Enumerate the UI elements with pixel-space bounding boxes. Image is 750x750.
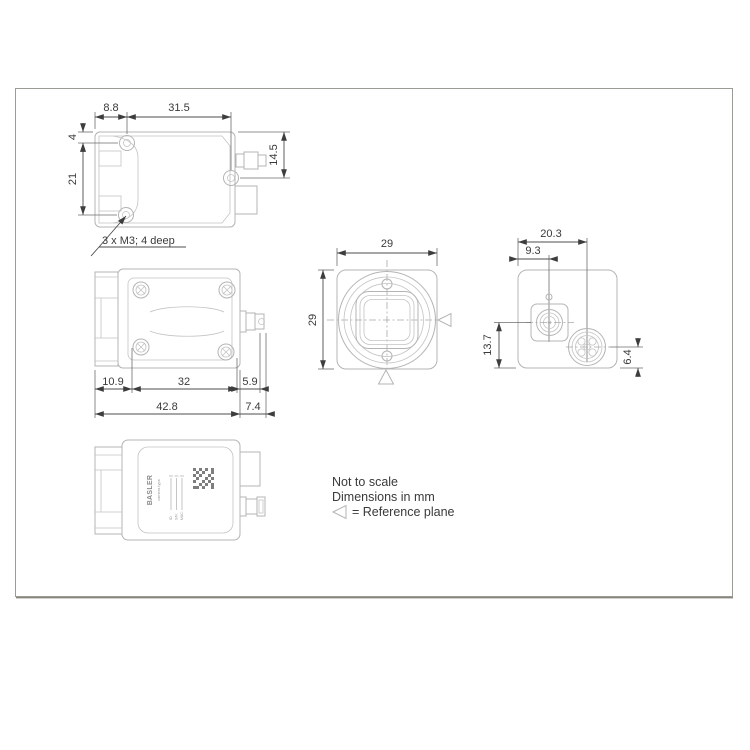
dim-label: 20.3 <box>540 228 561 240</box>
dim-label: 42.8 <box>156 401 177 413</box>
not-to-scale-note: Not to scale <box>332 475 398 489</box>
dim-label: 9.3 <box>525 245 540 257</box>
id-label: ID: <box>169 516 173 521</box>
dim-label: 31.5 <box>168 102 189 114</box>
dim-label: 5.9 <box>242 376 257 388</box>
dim-label: 32 <box>178 376 190 388</box>
dim-label: 21 <box>67 173 79 185</box>
drawing-page: 8.8 31.5 4 21 14.5 <box>0 0 750 750</box>
units-note: Dimensions in mm <box>332 490 435 504</box>
brand-label: BASLER <box>147 475 154 506</box>
dim-label: 6.4 <box>622 349 634 364</box>
dim-label: 8.8 <box>103 102 118 114</box>
reference-plane-note: = Reference plane <box>352 505 455 519</box>
camera-type-label: camera type <box>156 478 161 501</box>
dim-label: 29 <box>381 238 393 250</box>
thread-note-label: 3 x M3; 4 deep <box>102 235 175 247</box>
sn-label: S/N: <box>175 513 179 520</box>
dim-label: 13.7 <box>482 334 494 355</box>
dim-label: 4 <box>67 134 79 140</box>
dim-label: 29 <box>307 314 319 326</box>
mac-label: MAC: <box>180 511 184 520</box>
technical-drawing: 8.8 31.5 4 21 14.5 <box>0 0 750 750</box>
dim-label: 10.9 <box>102 376 123 388</box>
dim-label: 7.4 <box>245 401 260 413</box>
dim-label: 14.5 <box>268 144 280 165</box>
drawing-frame <box>16 89 734 598</box>
